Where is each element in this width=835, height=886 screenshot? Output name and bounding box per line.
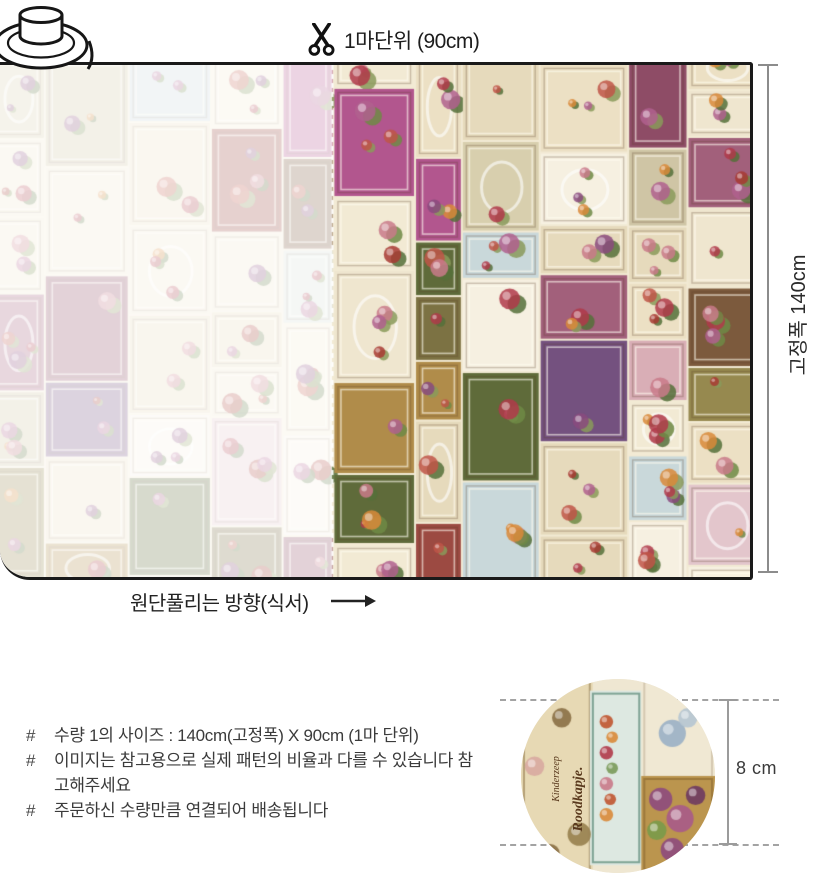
fabric-pattern-canvas — [0, 65, 750, 577]
arrow-right-icon — [331, 594, 377, 608]
note-bullet: # — [26, 798, 54, 823]
print-text-large: Roodkapje. — [571, 749, 587, 849]
product-notes: # 수량 1의 사이즈 : 140cm(고정폭) X 90cm (1마 단위) … — [26, 723, 488, 823]
scale-line-vertical — [727, 700, 729, 845]
note-size: # 수량 1의 사이즈 : 140cm(고정폭) X 90cm (1마 단위) — [26, 723, 488, 748]
fixed-width-label: 고정폭 140cm — [782, 245, 806, 385]
measure-cap-bottom — [758, 571, 778, 573]
scale-label: 8 cm — [736, 758, 777, 779]
note-text: 수량 1의 사이즈 : 140cm(고정폭) X 90cm (1마 단위) — [54, 723, 488, 748]
note-text: 주문하신 수량만큼 연결되어 배송됩니다 — [54, 798, 488, 823]
print-text-small: Kinderzeep — [551, 734, 563, 824]
fabric-swatch — [0, 62, 753, 580]
scale-tick-bottom — [719, 843, 737, 845]
note-image-disclaimer: # 이미지는 참고용으로 실제 패턴의 비율과 다를 수 있습니다 참고해주세요 — [26, 748, 488, 798]
scissors-icon — [308, 23, 335, 56]
product-info-diagram: 1마단위 (90cm) 고정폭 140cm 원단풀리는 방향(식서) # 수량 … — [0, 0, 835, 886]
note-shipping: # 주문하신 수량만큼 연결되어 배송됩니다 — [26, 798, 488, 823]
fabric-detail-circle: Kinderzeep Roodkapje. — [521, 679, 715, 873]
grain-direction-label: 원단풀리는 방향(식서) — [130, 587, 308, 616]
note-text: 이미지는 참고용으로 실제 패턴의 비율과 다를 수 있습니다 참고해주세요 — [54, 748, 488, 798]
note-bullet: # — [26, 748, 54, 798]
measure-line-vertical — [767, 64, 769, 573]
cut-unit-label: 1마단위 (90cm) — [344, 25, 479, 55]
cut-unit-label-group: 1마단위 (90cm) — [308, 23, 479, 56]
note-bullet: # — [26, 723, 54, 748]
fabric-roll-icon — [0, 1, 120, 83]
